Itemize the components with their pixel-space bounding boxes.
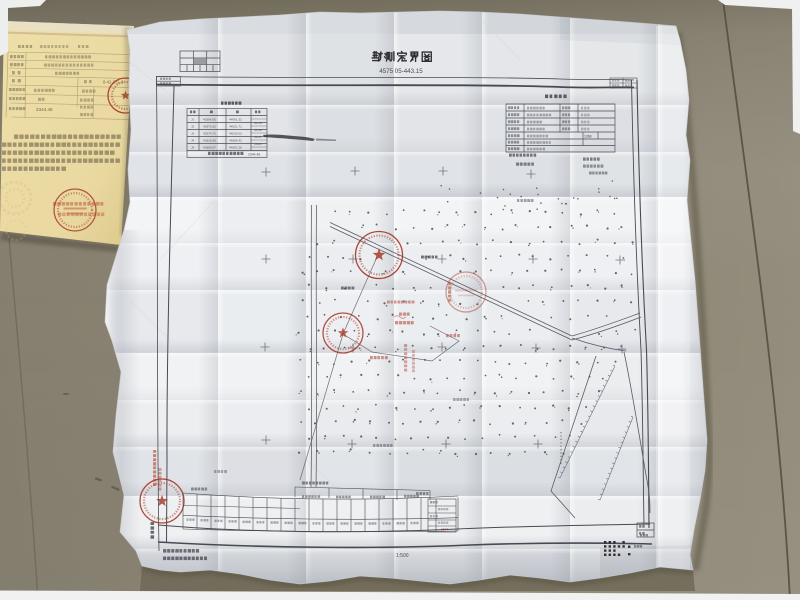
svg-text:40376.62: 40376.62 xyxy=(203,124,216,128)
svg-text:40318.95: 40318.95 xyxy=(203,138,216,142)
svg-text:J5: J5 xyxy=(191,145,195,149)
svg-text:J4: J4 xyxy=(191,138,195,142)
svg-text:2344.46: 2344.46 xyxy=(36,107,53,112)
svg-text:44030.03: 44030.03 xyxy=(229,131,242,135)
svg-text:J2: J2 xyxy=(191,124,195,128)
svg-text:40.19: 40.19 xyxy=(254,121,262,125)
svg-text:44086.42: 44086.42 xyxy=(229,138,242,142)
svg-text:4575 05-443.15: 4575 05-443.15 xyxy=(379,68,423,75)
svg-text:44092.28: 44092.28 xyxy=(229,145,242,149)
svg-text:40274.72: 40274.72 xyxy=(203,131,216,135)
svg-text:1:500: 1:500 xyxy=(396,553,409,559)
svg-text:44091.32: 44091.32 xyxy=(229,117,242,121)
svg-text:40386.65: 40386.65 xyxy=(203,117,216,121)
svg-text:38.81: 38.81 xyxy=(254,142,262,146)
svg-text:J3: J3 xyxy=(191,131,195,135)
svg-text:1368: 1368 xyxy=(584,135,592,139)
svg-text:44021.71: 44021.71 xyxy=(229,124,242,128)
svg-text:2344: 2344 xyxy=(441,528,448,532)
svg-text:46.38: 46.38 xyxy=(254,128,262,132)
svg-text:J1: J1 xyxy=(191,117,195,121)
svg-text:40380.67: 40380.67 xyxy=(203,145,216,149)
svg-text:49.91: 49.91 xyxy=(254,135,262,139)
svg-text:2344.46: 2344.46 xyxy=(248,152,260,156)
